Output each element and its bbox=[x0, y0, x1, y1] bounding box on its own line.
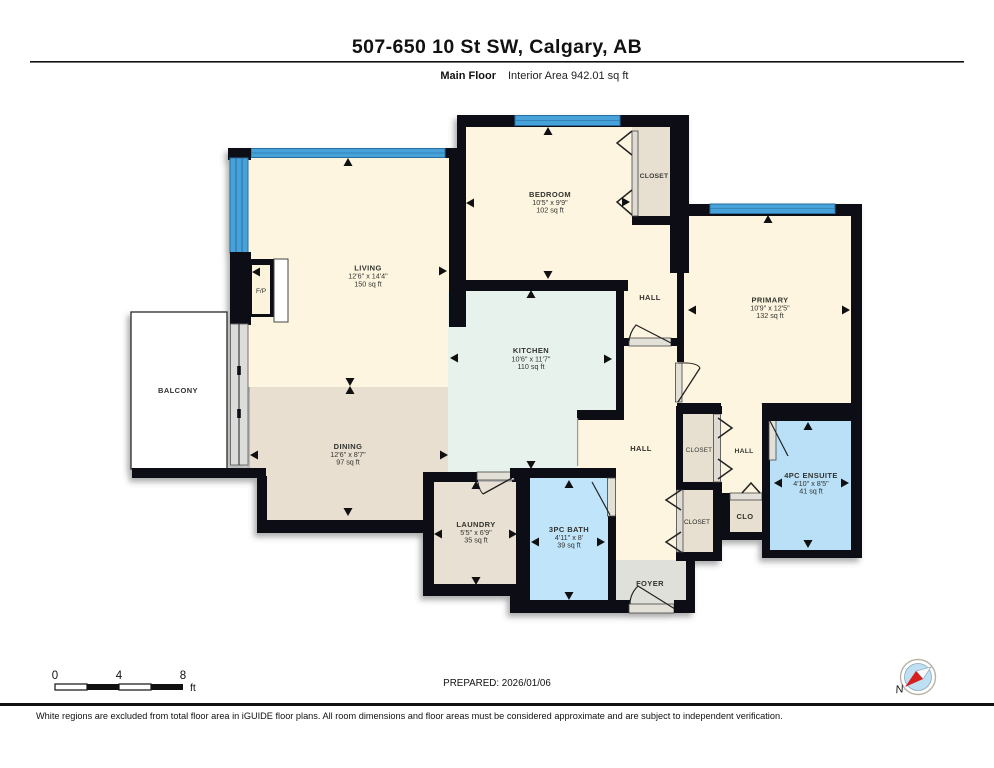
svg-text:41 sq ft: 41 sq ft bbox=[799, 487, 823, 496]
svg-text:PREPARED: 2026/01/06: PREPARED: 2026/01/06 bbox=[443, 678, 551, 689]
svg-text:HALL: HALL bbox=[735, 448, 754, 455]
svg-text:4: 4 bbox=[116, 670, 123, 682]
svg-text:HALL: HALL bbox=[630, 444, 652, 453]
svg-text:35 sq ft: 35 sq ft bbox=[464, 536, 488, 545]
svg-text:150 sq ft: 150 sq ft bbox=[354, 279, 382, 288]
svg-text:132 sq ft: 132 sq ft bbox=[756, 311, 784, 320]
svg-text:102 sq ft: 102 sq ft bbox=[536, 206, 564, 215]
svg-text:507-650 10 St SW, Calgary, AB: 507-650 10 St SW, Calgary, AB bbox=[352, 36, 642, 58]
svg-text:8: 8 bbox=[180, 670, 186, 682]
svg-text:FOYER: FOYER bbox=[636, 579, 664, 588]
svg-text:ft: ft bbox=[190, 682, 196, 694]
svg-text:Main Floor: Main Floor bbox=[440, 70, 496, 82]
svg-text:F/P: F/P bbox=[256, 288, 266, 295]
svg-text:97 sq ft: 97 sq ft bbox=[336, 458, 360, 467]
svg-text:CLOSET: CLOSET bbox=[686, 447, 712, 454]
svg-text:Interior Area 942.01 sq ft: Interior Area 942.01 sq ft bbox=[508, 70, 628, 82]
svg-text:CLOSET: CLOSET bbox=[640, 173, 669, 180]
svg-text:CLOSET: CLOSET bbox=[684, 519, 710, 526]
svg-text:BALCONY: BALCONY bbox=[158, 386, 198, 395]
svg-text:0: 0 bbox=[52, 670, 58, 682]
svg-text:CLO: CLO bbox=[736, 512, 753, 521]
svg-text:White regions are excluded fro: White regions are excluded from total fl… bbox=[36, 711, 783, 721]
svg-text:HALL: HALL bbox=[639, 293, 661, 302]
svg-text:39 sq ft: 39 sq ft bbox=[557, 541, 581, 550]
svg-text:110 sq ft: 110 sq ft bbox=[517, 362, 544, 371]
